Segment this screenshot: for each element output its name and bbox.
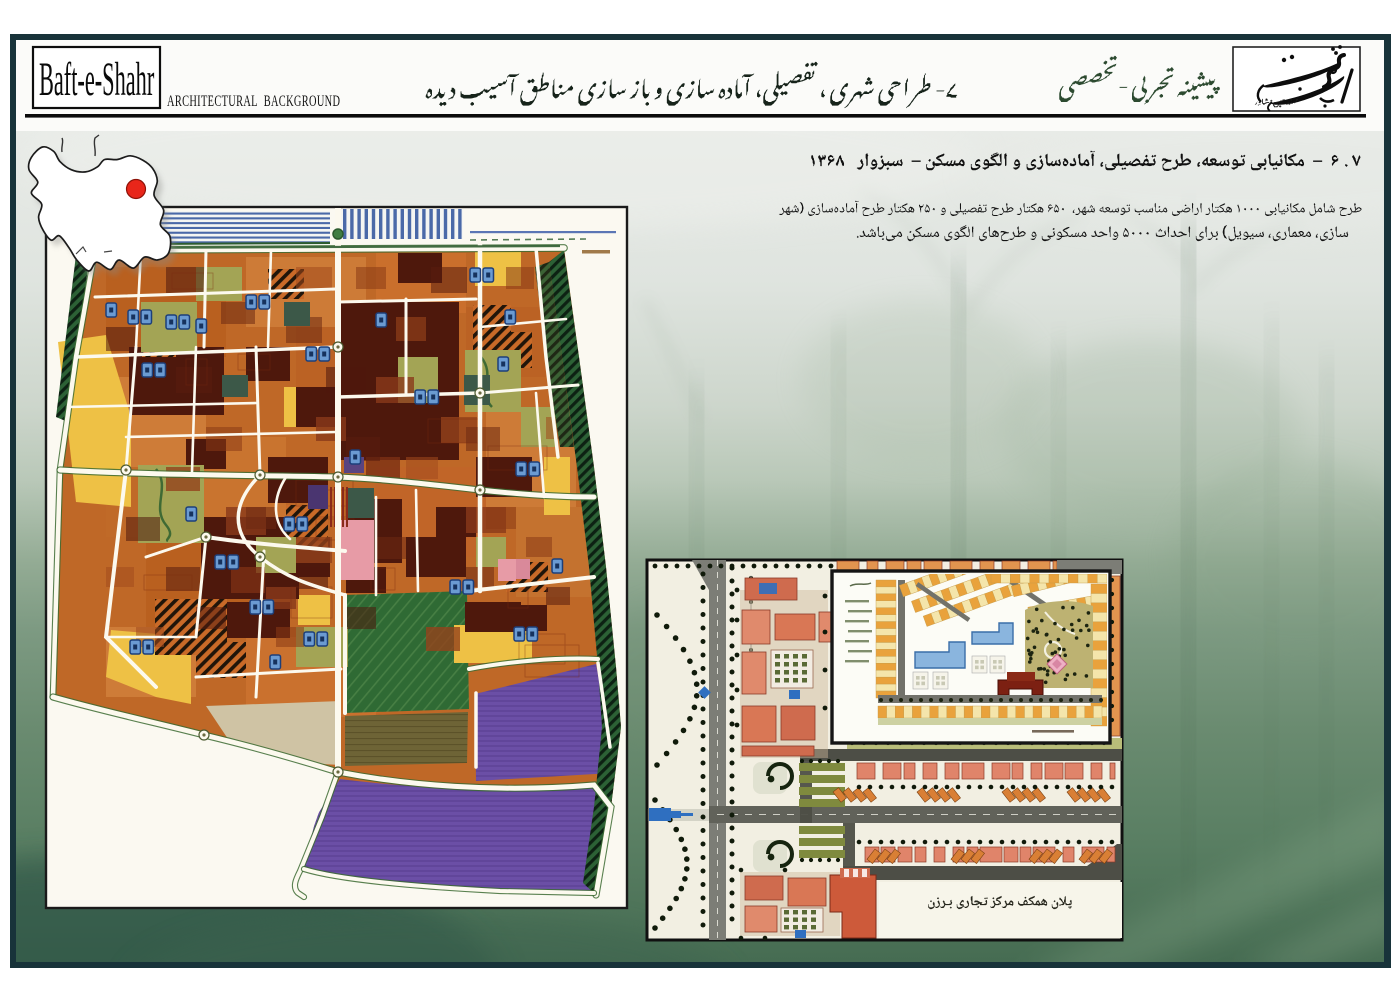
svg-text:ARCHITECTURAL BACKGROUND: ARCHITECTURAL BACKGROUND xyxy=(167,92,340,110)
svg-text:Baft-e-Shahr: Baft-e-Shahr xyxy=(39,54,155,107)
